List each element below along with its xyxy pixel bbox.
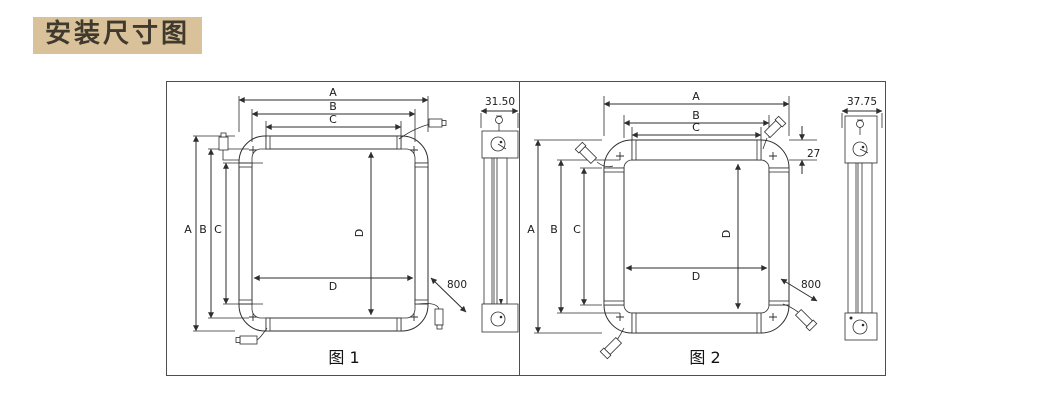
cable-length-dimension: 800 (431, 278, 467, 312)
cable-length-label: 800 (801, 279, 821, 291)
figure1-side-view: 31.50 (481, 96, 518, 332)
figure1-drawing: A B C A B C D D (167, 82, 519, 375)
dim-label-b-left: B (199, 223, 207, 236)
figure2-drawing: A B C A B C D D (520, 82, 885, 375)
figure2-top-dimensions: A B C (604, 90, 789, 140)
figure2-panel: A B C A B C D D (520, 82, 885, 375)
figure2-side-view: 37.75 (842, 96, 882, 340)
cable-connector-top-left (219, 133, 239, 160)
dim-label-a-top: A (329, 86, 337, 99)
dim-label-d-vertical: D (720, 230, 733, 238)
figure1-frame (239, 136, 428, 331)
mounting-screw-icon (496, 116, 503, 131)
dim-label-a-left: A (184, 223, 192, 236)
dim-label-c-left: C (573, 223, 581, 236)
dim-label-b-left: B (550, 223, 558, 236)
dim-label-c-left: C (214, 223, 222, 236)
figure1-caption: 图 1 (328, 348, 359, 367)
dim-label-a-left: A (527, 223, 535, 236)
page: { "title": "安装尺寸图", "colors": { "title_b… (0, 0, 1053, 412)
page-title: 安装尺寸图 (33, 17, 202, 54)
profile-depth-label: 31.50 (485, 96, 515, 108)
dim-label-c-top: C (329, 113, 337, 126)
bar-height-label: 27 (807, 148, 820, 160)
figure2-frame (604, 140, 789, 333)
figure1-top-dimensions: A B C (239, 86, 428, 142)
figure2-bar-height-dimension: 27 (789, 126, 820, 174)
dim-label-d-vertical: D (353, 229, 366, 237)
cable-connector-bottom-left (600, 328, 624, 359)
figure1-panel: A B C A B C D D (167, 82, 520, 375)
dim-label-c-top: C (692, 121, 700, 134)
dim-label-d-horizontal: D (329, 280, 337, 293)
drawing-panels: A B C A B C D D (166, 81, 886, 376)
cable-length-label: 800 (447, 279, 467, 291)
profile-depth-label: 37.75 (847, 96, 877, 108)
dim-label-d-horizontal: D (692, 270, 700, 283)
figure2-caption: 图 2 (689, 348, 720, 367)
dim-label-a-top: A (692, 90, 700, 103)
dim-label-b-top: B (329, 100, 337, 113)
